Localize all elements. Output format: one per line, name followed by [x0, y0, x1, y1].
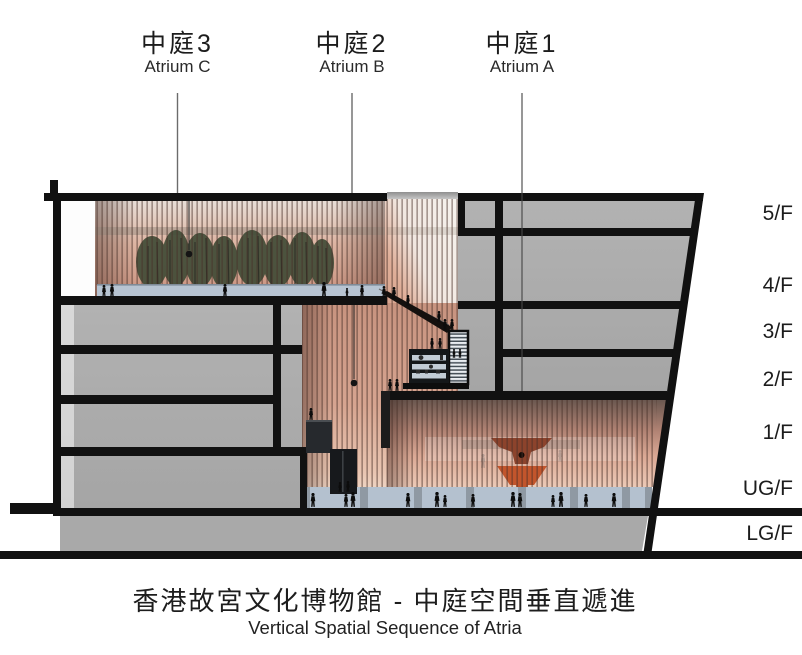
floor-label-2f: 2/F [703, 368, 793, 392]
ug-ground-line [53, 508, 802, 516]
stair-louver-tower [449, 331, 468, 384]
lg-ground-line [0, 551, 802, 559]
floor-label-1f: 1/F [703, 421, 793, 445]
title-block: 香港故宮文化博物館 - 中庭空間垂直遞進 Vertical Spatial Se… [132, 586, 637, 639]
west-gallery-block [53, 303, 307, 511]
atrium-b-zh: 中庭2 [316, 31, 389, 57]
atrium-c-en: Atrium C [141, 57, 214, 77]
building-section-drawing [0, 0, 802, 655]
floor-label-ugf: UG/F [703, 477, 793, 501]
label-atrium-c: 中庭3 Atrium C [141, 31, 214, 77]
floor-label-lgf: LG/F [703, 522, 793, 546]
label-atrium-b: 中庭2 Atrium B [316, 31, 389, 77]
first-floor-slab [381, 391, 667, 400]
lg-floor-poche [60, 516, 648, 551]
atrium-c-slat-screen [95, 197, 387, 285]
terrace-glass-balustrade [97, 284, 387, 297]
atrium-b-en: Atrium B [316, 57, 389, 77]
ground-base [0, 503, 802, 559]
atrium-c-zh: 中庭3 [141, 31, 214, 57]
terrace-slab [53, 296, 387, 305]
diagram-title-zh: 香港故宮文化博物館 - 中庭空間垂直遞進 [132, 586, 637, 616]
floor-label-4f: 4/F [703, 274, 793, 298]
label-atrium-a: 中庭1 Atrium A [486, 31, 559, 77]
atrium-a-zh: 中庭1 [486, 31, 559, 57]
floor-label-3f: 3/F [703, 320, 793, 344]
section-diagram: 中庭3 Atrium C 中庭2 Atrium B 中庭1 Atrium A 5… [0, 0, 802, 655]
floor-label-5f: 5/F [703, 202, 793, 226]
diagram-title-en: Vertical Spatial Sequence of Atria [132, 616, 637, 639]
skylight [387, 192, 458, 199]
atrium-a-slat-screen [387, 400, 657, 487]
atrium-a-en: Atrium A [486, 57, 559, 77]
east-gallery-block [458, 197, 700, 391]
